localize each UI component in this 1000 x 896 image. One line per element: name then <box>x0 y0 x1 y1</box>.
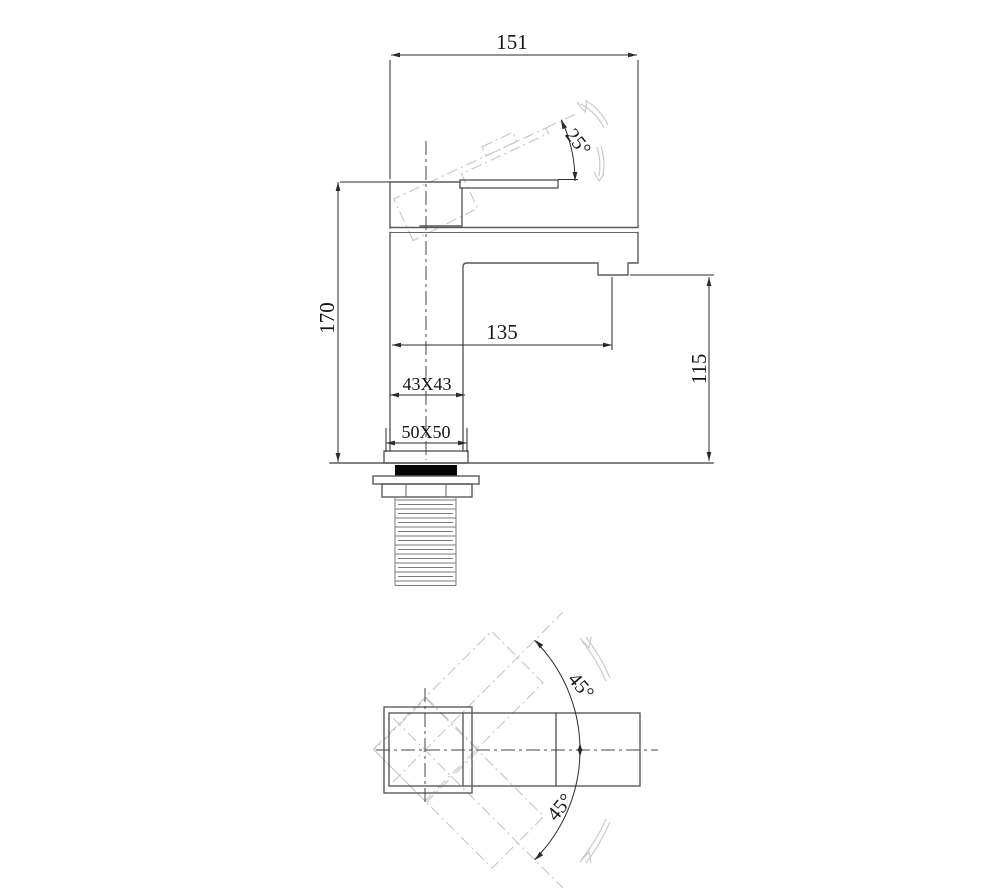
dim-handle-angle: 25° <box>558 120 595 181</box>
dim-overall-width: 151 <box>390 30 638 227</box>
side-view: 151 170 135 115 <box>315 30 714 586</box>
dim-body-section: 43X43 <box>390 374 465 397</box>
lever-phantom-raised <box>390 104 597 240</box>
dim-text-135: 135 <box>486 320 518 344</box>
dim-spout-reach: 135 <box>392 277 612 350</box>
threaded-shank <box>395 497 456 586</box>
dim-text-45deg-upper: 45° <box>563 669 598 705</box>
faucet-outline <box>330 141 713 586</box>
rubber-gasket <box>395 465 457 476</box>
handle-phantom-up <box>367 586 588 807</box>
dim-text-50x50: 50X50 <box>402 422 451 442</box>
mounting-nut <box>382 484 472 497</box>
plan-view: 45° 45° <box>367 586 658 896</box>
dim-outlet-height: 115 <box>630 275 714 461</box>
dim-text-151: 151 <box>496 30 528 54</box>
motion-arrowhead-up-icon <box>577 101 587 112</box>
faucet-technical-drawing: 151 170 135 115 <box>0 0 1000 896</box>
dim-overall-height: 170 <box>315 182 390 462</box>
lever-blade <box>460 180 558 188</box>
dim-text-115: 115 <box>687 354 711 385</box>
mounting-flange <box>373 476 479 484</box>
dim-text-45deg-lower: 45° <box>543 790 578 826</box>
drawing-canvas: 151 170 135 115 <box>0 0 1000 896</box>
dim-text-170: 170 <box>315 302 339 334</box>
dim-text-43x43: 43X43 <box>403 374 452 394</box>
